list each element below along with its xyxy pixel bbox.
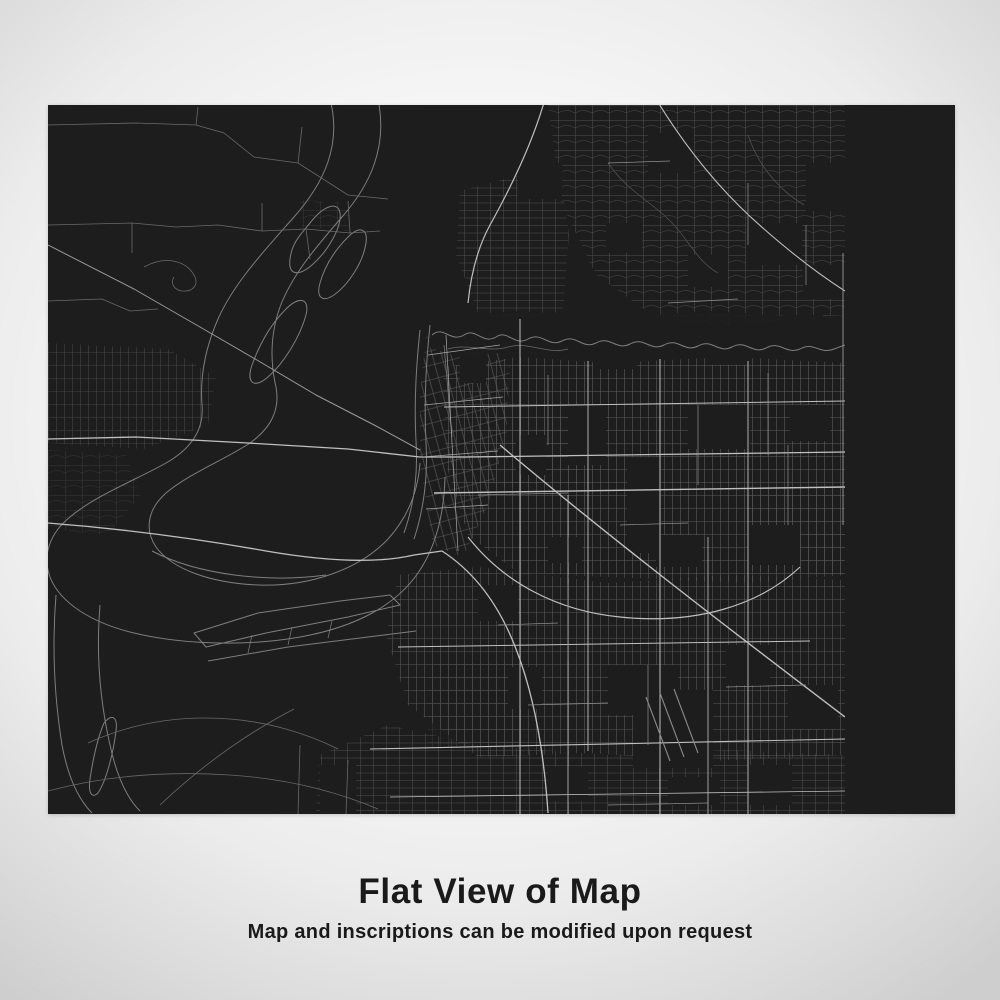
- caption-title: Flat View of Map: [0, 872, 1000, 912]
- map-panel: TENNESSEE / 35.15°N 90.05°W MEMPHIS: [48, 105, 955, 814]
- map-label-strip: TENNESSEE / 35.15°N 90.05°W MEMPHIS: [845, 105, 955, 814]
- street-map-graphic: [48, 105, 845, 814]
- caption-subtitle: Map and inscriptions can be modified upo…: [0, 921, 1000, 944]
- caption-block: Flat View of Map Map and inscriptions ca…: [0, 872, 1000, 944]
